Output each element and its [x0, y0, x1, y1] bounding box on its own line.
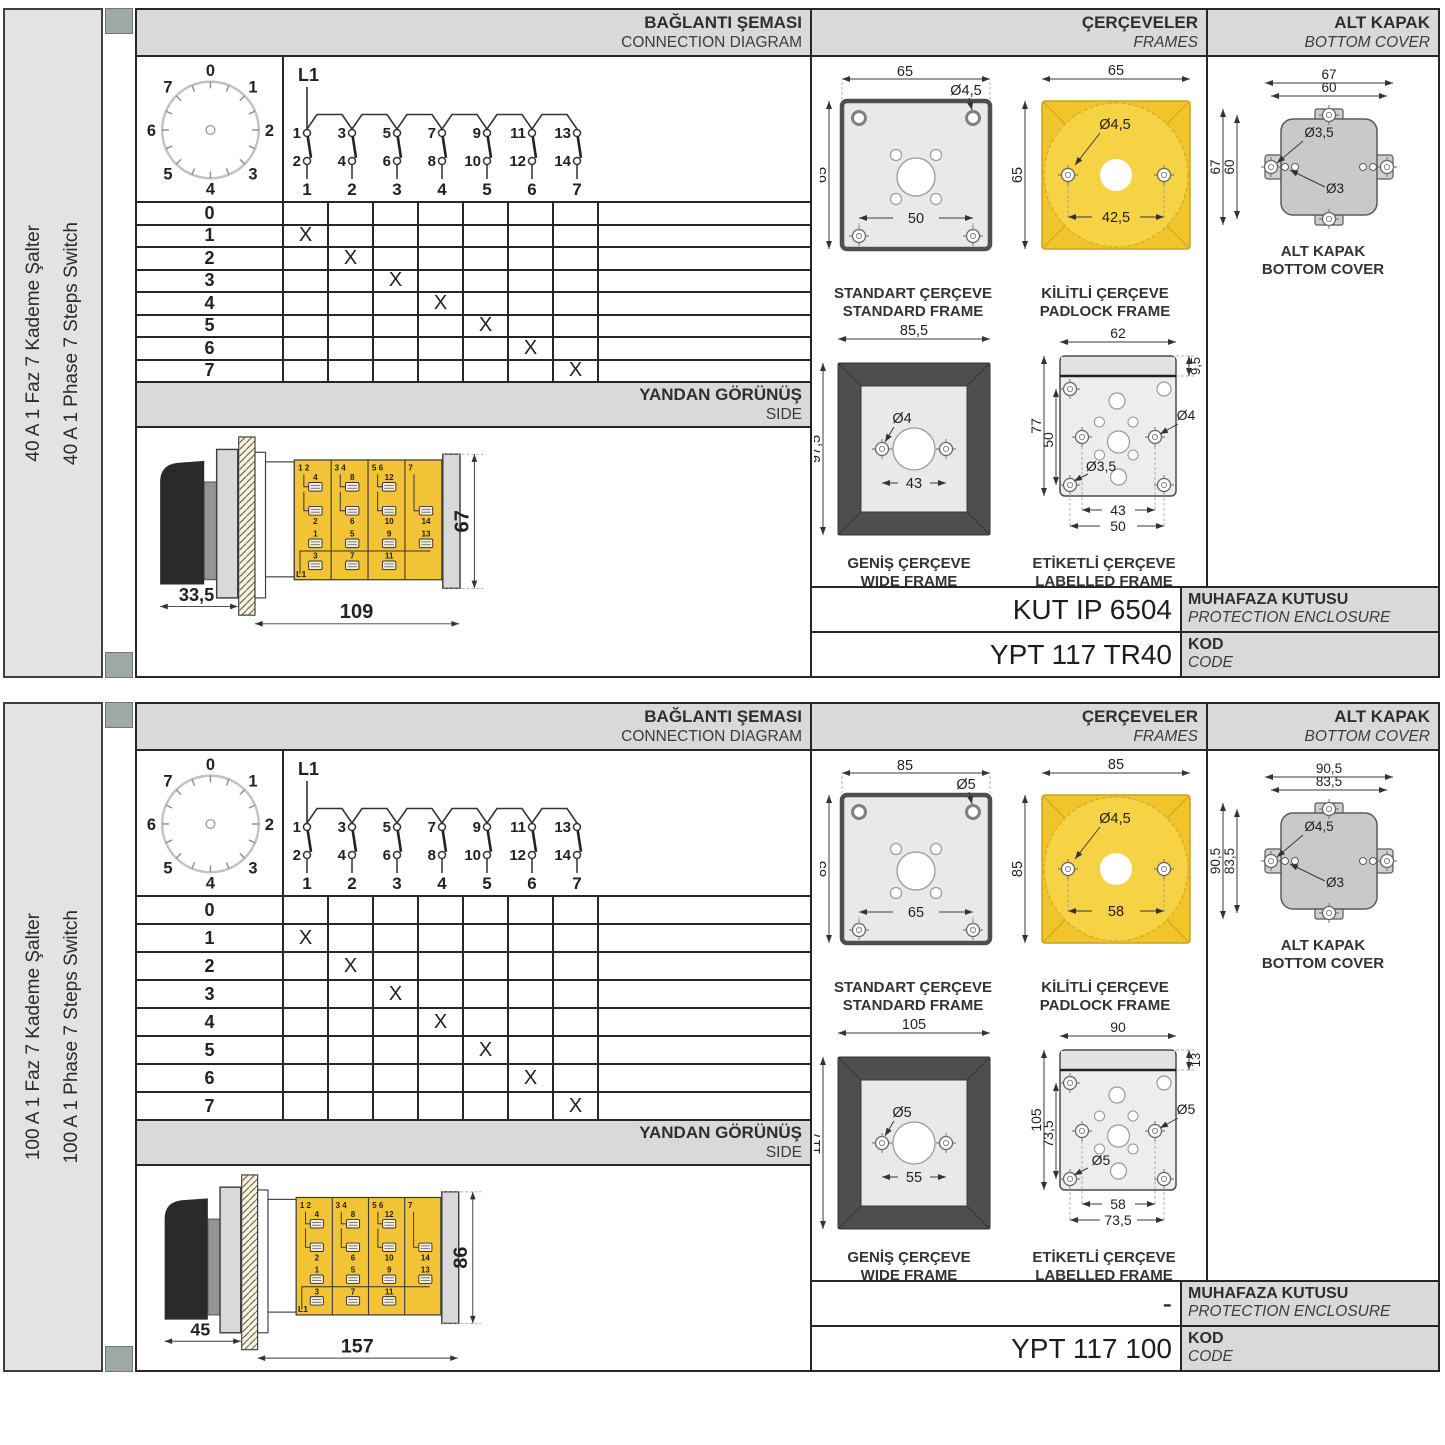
dim-height: 117	[814, 1131, 824, 1154]
mark-cell-3	[374, 203, 419, 224]
dim-hole-right: Ø4	[1177, 407, 1196, 423]
mark-cell-3	[374, 953, 419, 979]
mark-cell-5: X	[464, 1037, 509, 1063]
table-row: 4 X	[137, 1007, 810, 1035]
mark-cell-1	[284, 361, 329, 382]
mark-cell-7: X	[554, 1093, 599, 1119]
dim-hole: Ø5	[892, 1105, 911, 1121]
dim-hole2: Ø3	[1326, 875, 1344, 890]
mark-cell-6	[509, 271, 554, 292]
mark-cell-1	[284, 248, 329, 269]
mounting-panel-hatch	[242, 1175, 258, 1350]
mark-cell-7	[554, 1009, 599, 1035]
mark-cell-3	[374, 1037, 419, 1063]
svg-text:14: 14	[421, 1253, 430, 1262]
dim-width: 85,5	[900, 325, 928, 339]
mark-cell-5	[464, 293, 509, 314]
front-plate	[220, 1187, 241, 1333]
svg-text:4: 4	[315, 1210, 320, 1219]
svg-text:5: 5	[351, 1266, 356, 1275]
svg-text:8: 8	[350, 473, 355, 482]
svg-text:3: 3	[248, 859, 257, 877]
svg-text:9: 9	[473, 819, 481, 836]
datasheet-main: BAĞLANTI ŞEMASI CONNECTION DIAGRAM ÇERÇE…	[135, 702, 1440, 1372]
mark-cell-3	[374, 1009, 419, 1035]
dim-height: 97,5	[814, 435, 824, 463]
position-cell: 7	[137, 361, 284, 382]
svg-text:5: 5	[482, 874, 491, 893]
bridge-links	[307, 809, 577, 824]
mark-cell-3	[374, 925, 419, 951]
svg-text:13: 13	[421, 1266, 430, 1275]
table-row: 0	[137, 201, 810, 224]
svg-text:12: 12	[385, 1210, 394, 1219]
side-title-bar: 100 A 1 Faz 7 Kademe Şalter 100 A 1 Phas…	[3, 702, 103, 1372]
handle	[160, 461, 204, 585]
svg-text:3: 3	[392, 874, 401, 893]
mark-cell-2	[329, 1009, 374, 1035]
dim-hole-right: Ø5	[1177, 1101, 1196, 1117]
filler-cell	[599, 316, 810, 337]
contact-leads	[307, 859, 577, 874]
table-row: 4 X	[137, 291, 810, 314]
mark-cell-2	[329, 316, 374, 337]
svg-text:3: 3	[248, 165, 257, 183]
table-row: 1 X	[137, 923, 810, 951]
enclosure-label-en: PROTECTION ENCLOSURE	[1188, 609, 1438, 626]
dim-width: 65	[897, 65, 913, 80]
panel-40a: 40 A 1 Faz 7 Kademe Şalter 40 A 1 Phase …	[3, 8, 1440, 678]
svg-text:3: 3	[313, 552, 318, 561]
mark-cell-7: X	[554, 361, 599, 382]
svg-text:2: 2	[347, 874, 356, 893]
position-cell: 3	[137, 271, 284, 292]
filler-cell	[599, 361, 810, 382]
mark-cell-3	[374, 1065, 419, 1091]
frames-section: 85 Ø5 85 65	[812, 751, 1206, 1280]
svg-text:5 6: 5 6	[372, 1201, 384, 1210]
dim-hole: Ø4	[892, 411, 911, 427]
standard-frame-label-tr: STANDART ÇERÇEVE	[834, 285, 992, 303]
mark-cell-5: X	[464, 316, 509, 337]
contacts-svg: L1	[284, 751, 812, 893]
mark-cell-2	[329, 1093, 374, 1119]
mark-cell-5	[464, 203, 509, 224]
svg-text:5: 5	[350, 530, 355, 539]
side-view-figure: 1 2 3 4 5 6 7 4 8 12 2 6	[137, 1166, 810, 1370]
enclosure-label-tr: MUHAFAZA KUTUSU	[1188, 591, 1438, 609]
cover-caption-tr: ALT KAPAK	[1262, 243, 1384, 261]
svg-text:5: 5	[163, 165, 172, 183]
mark-cell-7	[554, 293, 599, 314]
product-code: YPT 117 TR40	[812, 633, 1180, 676]
filler-cell	[599, 203, 810, 224]
phase-label: L1	[298, 65, 319, 85]
svg-text:10: 10	[385, 1253, 394, 1262]
dim-hole-bl: Ø3,5	[1086, 458, 1117, 474]
header-connection: BAĞLANTI ŞEMASI CONNECTION DIAGRAM	[137, 704, 812, 749]
svg-text:7: 7	[428, 125, 436, 142]
dim-handle-depth: 45	[190, 1320, 210, 1340]
dial-ticks	[162, 776, 259, 873]
section-headers: BAĞLANTI ŞEMASI CONNECTION DIAGRAM ÇERÇE…	[137, 10, 1438, 57]
svg-text:0: 0	[206, 756, 215, 774]
svg-text:1: 1	[315, 1266, 320, 1275]
catalog-page: 40 A 1 Faz 7 Kademe Şalter 40 A 1 Phase …	[0, 0, 1445, 1372]
enclosure-label: MUHAFAZA KUTUSU PROTECTION ENCLOSURE	[1180, 1282, 1438, 1325]
svg-text:4: 4	[338, 847, 347, 864]
svg-text:7: 7	[572, 874, 581, 893]
shaft-section	[266, 462, 295, 577]
padlock-frame-svg: 65 65 Ø4,5 42,5	[1012, 65, 1198, 283]
handle-hub	[204, 482, 216, 580]
filler-cell	[599, 271, 810, 292]
mark-cell-6: X	[509, 1065, 554, 1091]
contact-blades	[308, 830, 581, 852]
mark-cell-3	[374, 316, 419, 337]
dim-inner-h: 83,5	[1222, 848, 1237, 874]
labelled-frame-label-tr: ETİKETLİ ÇERÇEVE	[1032, 555, 1175, 573]
mark-cell-4	[419, 981, 464, 1007]
dim-pitch: 65	[908, 905, 924, 921]
padlock-frame-figure: 65 65 Ø4,5 42,5	[1012, 65, 1198, 321]
handle	[165, 1198, 208, 1319]
svg-text:3: 3	[338, 819, 346, 836]
mark-cell-5	[464, 897, 509, 923]
filler-cell	[599, 293, 810, 314]
mark-cell-5	[464, 248, 509, 269]
svg-text:13: 13	[421, 530, 431, 539]
enclosure-code: -	[812, 1282, 1180, 1325]
standard-frame-label-en: STANDARD FRAME	[834, 303, 992, 321]
dim-outer-h: 67	[1208, 159, 1223, 174]
frames-and-cover: 85 Ø5 85 65	[812, 751, 1438, 1370]
dim-hole2: Ø3	[1326, 181, 1344, 196]
svg-text:3 4: 3 4	[335, 463, 347, 472]
position-cell: 6	[137, 338, 284, 359]
wide-frame-figure: Ø5 105 117 55	[814, 1019, 1004, 1285]
svg-text:6: 6	[351, 1253, 356, 1262]
mark-cell-6	[509, 1093, 554, 1119]
bottom-cover-svg: 90,5 83,5 90,5 83,5 Ø4,5 Ø3	[1207, 763, 1439, 935]
svg-text:7: 7	[163, 78, 172, 96]
mark-cell-1	[284, 1065, 329, 1091]
contact-blades	[308, 136, 581, 158]
svg-text:6: 6	[527, 180, 536, 199]
side-title-bar: 40 A 1 Faz 7 Kademe Şalter 40 A 1 Phase …	[3, 8, 103, 678]
mark-cell-2	[329, 925, 374, 951]
svg-text:3: 3	[315, 1287, 320, 1296]
mark-cell-4	[419, 203, 464, 224]
svg-text:8: 8	[428, 153, 436, 170]
svg-text:1 2: 1 2	[300, 1201, 312, 1210]
svg-text:12: 12	[385, 473, 395, 482]
svg-text:4: 4	[437, 180, 447, 199]
dim-inner-height: 73,5	[1040, 1120, 1056, 1147]
dial-svg: 0 1 2 3 4 5 6 7	[137, 59, 282, 199]
position-table: 0 1 X	[137, 895, 810, 1121]
front-plate	[217, 449, 238, 598]
mark-cell-7	[554, 248, 599, 269]
mark-cell-5	[464, 1065, 509, 1091]
side-view-svg: 1 2 3 4 5 6 7 4 8 12 2 6	[147, 436, 637, 642]
header-frames: ÇERÇEVELER FRAMES	[812, 704, 1206, 749]
mark-cell-1	[284, 203, 329, 224]
mark-cell-2	[329, 338, 374, 359]
mark-cell-3	[374, 1093, 419, 1119]
svg-text:5 6: 5 6	[372, 463, 384, 472]
mark-cell-4: X	[419, 1009, 464, 1035]
svg-text:9: 9	[387, 530, 392, 539]
svg-text:6: 6	[527, 874, 536, 893]
dim-width: 62	[1110, 325, 1126, 341]
svg-text:5: 5	[383, 125, 391, 142]
switch-numbers: 12 34 56 7	[302, 180, 581, 199]
table-row: 7 X	[137, 1091, 810, 1119]
svg-text:3 4: 3 4	[336, 1201, 348, 1210]
filler-cell	[599, 1093, 810, 1119]
svg-text:L1: L1	[296, 569, 306, 579]
svg-text:4: 4	[206, 875, 216, 893]
dim-hole1: Ø3,5	[1304, 125, 1333, 140]
dim-hole-bl: Ø5	[1092, 1152, 1111, 1168]
svg-text:6: 6	[383, 153, 391, 170]
mark-cell-1	[284, 953, 329, 979]
table-row: 5 X	[137, 1035, 810, 1063]
svg-text:12: 12	[509, 153, 526, 170]
mark-cell-3	[374, 293, 419, 314]
shaft-section	[268, 1199, 296, 1312]
dim-hole: Ø4,5	[950, 83, 981, 99]
dim-inner-height: 50	[1040, 432, 1056, 448]
dim-pitch1: 43	[1110, 502, 1126, 518]
mark-cell-6	[509, 248, 554, 269]
standard-frame-figure: 65 Ø4,5 65 50	[820, 65, 1006, 321]
contact-diagram-figure: L1	[284, 57, 812, 201]
mark-cell-1	[284, 293, 329, 314]
svg-text:L1: L1	[298, 1304, 308, 1314]
mark-cell-7	[554, 271, 599, 292]
enclosure-label: MUHAFAZA KUTUSU PROTECTION ENCLOSURE	[1180, 588, 1438, 631]
filler-cell	[599, 925, 810, 951]
dim-outer-h: 90,5	[1208, 848, 1223, 874]
svg-text:4: 4	[437, 874, 447, 893]
svg-text:0: 0	[206, 62, 215, 80]
mark-cell-1	[284, 981, 329, 1007]
labelled-frame-svg: 90 13 105 73,5 Ø5	[1004, 1019, 1204, 1247]
mark-cell-2	[329, 897, 374, 923]
panel-100a: 100 A 1 Faz 7 Kademe Şalter 100 A 1 Phas…	[3, 702, 1440, 1372]
mark-cell-3: X	[374, 981, 419, 1007]
svg-text:1: 1	[293, 819, 301, 836]
dim-width: 85	[897, 759, 913, 774]
svg-text:8: 8	[351, 1210, 356, 1219]
product-title-en: 40 A 1 Phase 7 Steps Switch	[61, 222, 83, 465]
code-label-tr: KOD	[1188, 636, 1438, 654]
mark-cell-4	[419, 897, 464, 923]
position-cell: 4	[137, 1009, 284, 1035]
mark-cell-5	[464, 1093, 509, 1119]
filler-cell	[599, 1065, 810, 1091]
bottom-cover-section: 90,5 83,5 90,5 83,5 Ø4,5 Ø3	[1206, 751, 1438, 1280]
svg-text:9: 9	[473, 125, 481, 142]
mark-cell-4	[419, 1037, 464, 1063]
mark-cell-3	[374, 248, 419, 269]
dim-top-strip: 13	[1188, 1053, 1203, 1067]
filler-cell	[599, 1009, 810, 1035]
mark-cell-1	[284, 897, 329, 923]
mark-cell-6	[509, 1009, 554, 1035]
header-frames: ÇERÇEVELER FRAMES	[812, 10, 1206, 55]
padlock-frame-label-en: PADLOCK FRAME	[1040, 303, 1171, 321]
svg-text:1: 1	[302, 180, 311, 199]
svg-text:4: 4	[313, 473, 318, 482]
svg-text:6: 6	[147, 122, 156, 140]
mark-cell-6	[509, 897, 554, 923]
mark-cell-6	[509, 293, 554, 314]
filler-cell	[599, 953, 810, 979]
mark-cell-5	[464, 953, 509, 979]
mark-cell-2	[329, 271, 374, 292]
mark-cell-5	[464, 1009, 509, 1035]
svg-text:14: 14	[421, 517, 431, 526]
dim-pitch2: 73,5	[1104, 1212, 1131, 1228]
mark-cell-7	[554, 897, 599, 923]
mark-cell-3	[374, 226, 419, 247]
dim-body-height: 86	[450, 1247, 472, 1269]
dim-pitch: 55	[906, 1170, 922, 1186]
product-title-tr: 40 A 1 Faz 7 Kademe Şalter	[23, 225, 45, 462]
svg-text:2: 2	[293, 153, 301, 170]
mark-cell-4	[419, 925, 464, 951]
svg-text:1: 1	[248, 78, 257, 96]
mark-cell-5	[464, 981, 509, 1007]
svg-text:5: 5	[383, 819, 391, 836]
standard-frame-svg: 65 Ø4,5 65 50	[820, 65, 1006, 283]
diagram-row: 0 1 2 3 4 5 6 7	[137, 57, 810, 201]
table-row: 3 X	[137, 269, 810, 292]
svg-text:11: 11	[385, 1287, 394, 1296]
enclosure-row: KUT IP 6504 MUHAFAZA KUTUSU PROTECTION E…	[812, 586, 1438, 631]
position-cell: 7	[137, 1093, 284, 1119]
dim-inner-w: 83,5	[1316, 774, 1342, 789]
mark-cell-1	[284, 1009, 329, 1035]
svg-text:4: 4	[338, 153, 347, 170]
svg-text:1: 1	[248, 772, 257, 790]
mark-cell-7	[554, 1037, 599, 1063]
mark-cell-1: X	[284, 226, 329, 247]
filler-cell	[599, 338, 810, 359]
position-cell: 6	[137, 1065, 284, 1091]
mark-cell-7	[554, 925, 599, 951]
dim-height: 77	[1028, 418, 1044, 434]
code-row: YPT 117 TR40 KOD CODE	[812, 631, 1438, 676]
dim-width: 85	[1108, 759, 1124, 773]
table-row: 2 X	[137, 246, 810, 269]
header-connection: BAĞLANTI ŞEMASI CONNECTION DIAGRAM	[137, 10, 812, 55]
mark-cell-7	[554, 338, 599, 359]
code-label: KOD CODE	[1180, 1327, 1438, 1370]
table-row: 3 X	[137, 979, 810, 1007]
side-view-header: YANDAN GÖRÜNÜŞ SIDE	[137, 1121, 810, 1166]
wide-frame-svg: Ø4 85,5 97,5 43	[814, 325, 1004, 553]
svg-text:8: 8	[428, 847, 436, 864]
filler-cell	[599, 981, 810, 1007]
mark-cell-2: X	[329, 248, 374, 269]
mark-cell-1	[284, 1093, 329, 1119]
filler-cell	[599, 1037, 810, 1063]
svg-text:7: 7	[428, 819, 436, 836]
dim-hole: Ø5	[956, 777, 975, 793]
dial-svg: 0 1 2 3 4 5 6 7	[137, 753, 282, 893]
binder-spine	[103, 8, 135, 678]
switch-numbers: 12 34 56 7	[302, 874, 581, 893]
mark-cell-6	[509, 226, 554, 247]
code-label-en: CODE	[1188, 654, 1438, 671]
table-row: 5 X	[137, 314, 810, 337]
filler-cell	[599, 226, 810, 247]
position-cell: 5	[137, 1037, 284, 1063]
table-row: 2 X	[137, 951, 810, 979]
svg-text:1: 1	[313, 530, 318, 539]
mark-cell-2	[329, 1065, 374, 1091]
dim-body-length: 157	[341, 1336, 374, 1358]
mark-cell-4	[419, 338, 464, 359]
mark-cell-4	[419, 953, 464, 979]
rotary-dial-figure: 0 1 2 3 4 5 6 7	[137, 751, 284, 895]
mark-cell-5	[464, 925, 509, 951]
mark-cell-1	[284, 316, 329, 337]
spacer-plate	[258, 1190, 268, 1333]
mark-cell-6	[509, 925, 554, 951]
svg-text:10: 10	[464, 847, 481, 864]
dim-top-strip: 9,5	[1188, 357, 1203, 375]
position-cell: 1	[137, 226, 284, 247]
dim-width: 105	[902, 1019, 926, 1033]
padlock-frame-figure: 85 85 Ø4,5 58	[1012, 759, 1198, 1015]
svg-text:7: 7	[163, 772, 172, 790]
standard-frame-figure: 85 Ø5 85 65	[820, 759, 1006, 1015]
section-headers: BAĞLANTI ŞEMASI CONNECTION DIAGRAM ÇERÇE…	[137, 704, 1438, 751]
dim-body-length: 109	[340, 601, 374, 623]
position-cell: 1	[137, 925, 284, 951]
product-title-en: 100 A 1 Phase 7 Steps Switch	[61, 910, 83, 1164]
svg-text:2: 2	[315, 1253, 320, 1262]
dim-hole1: Ø4,5	[1304, 819, 1333, 834]
mark-cell-2	[329, 1037, 374, 1063]
mark-cell-4	[419, 271, 464, 292]
svg-text:6: 6	[147, 816, 156, 834]
mark-cell-2: X	[329, 953, 374, 979]
position-cell: 2	[137, 953, 284, 979]
header-connection-tr: BAĞLANTI ŞEMASI	[137, 13, 802, 33]
spacer-plate	[255, 452, 266, 598]
header-cover-en: BOTTOM COVER	[1208, 34, 1430, 52]
svg-text:1: 1	[302, 874, 311, 893]
dim-height: 65	[1012, 167, 1026, 183]
svg-text:6: 6	[350, 517, 355, 526]
table-row: 7 X	[137, 359, 810, 382]
mark-cell-2	[329, 203, 374, 224]
position-cell: 4	[137, 293, 284, 314]
dim-handle-depth: 33,5	[179, 585, 214, 605]
svg-text:4: 4	[206, 181, 216, 199]
product-code: YPT 117 100	[812, 1327, 1180, 1370]
enclosure-row: - MUHAFAZA KUTUSU PROTECTION ENCLOSURE	[812, 1280, 1438, 1325]
filler-cell	[599, 248, 810, 269]
connection-section: 0 1 2 3 4 5 6 7	[137, 57, 812, 676]
mark-cell-2	[329, 361, 374, 382]
